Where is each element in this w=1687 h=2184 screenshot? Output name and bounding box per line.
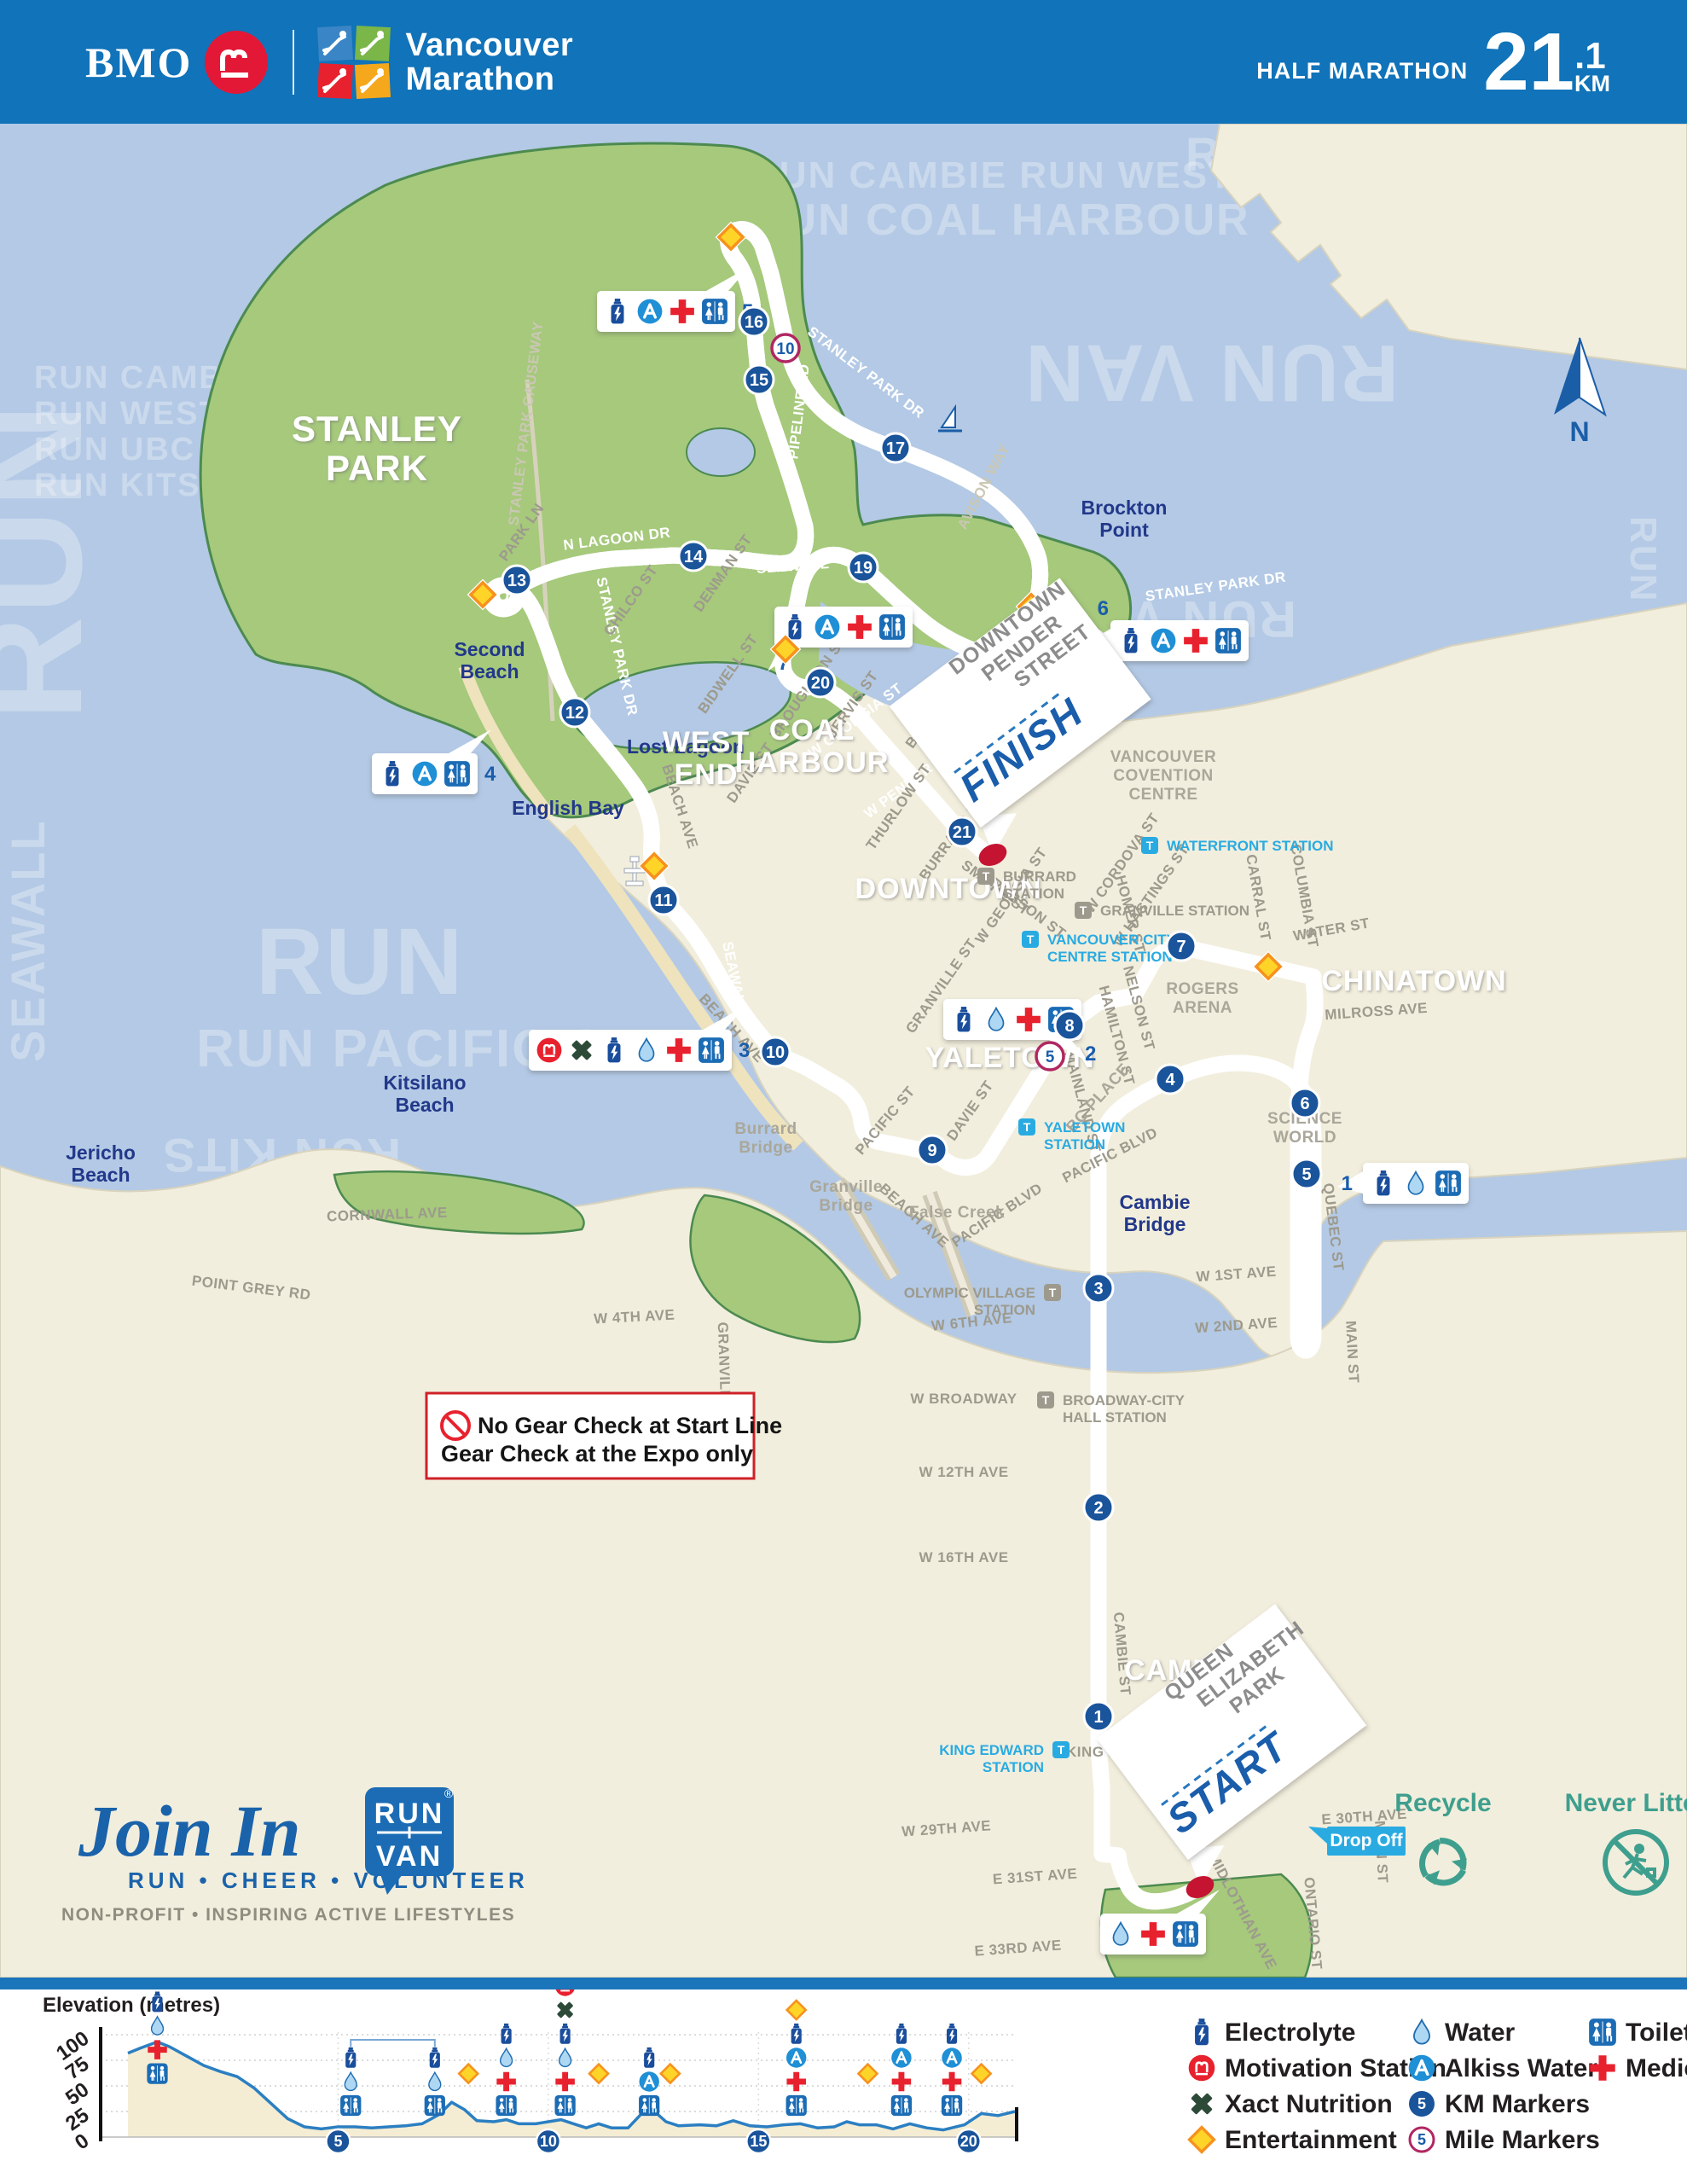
water-icon xyxy=(152,2017,164,2035)
course-map: RUNRUN CAMBIERUN WEST 49RUN UBCRUN KITSR… xyxy=(0,124,1687,1978)
legend-label: Toilets xyxy=(1626,2018,1687,2047)
km-legend-number: 5 xyxy=(1417,2095,1426,2112)
legend-label: Mile Markers xyxy=(1445,2126,1600,2154)
legend-item-km: 5KM Markers xyxy=(1409,2090,1590,2118)
km-marker-number: 10 xyxy=(766,1043,785,1062)
transit-station-label: GRANVILLE STATION xyxy=(1100,903,1249,919)
medical-icon xyxy=(892,2072,912,2092)
km-marker: 2 xyxy=(1084,1493,1113,1522)
place-label: JerichoBeach xyxy=(66,1141,136,1186)
race-label: HALF MARATHON xyxy=(1256,58,1468,84)
mile-marker-number: 10 xyxy=(776,340,794,358)
km-marker: 6 xyxy=(1290,1089,1319,1118)
gear-note-line1: No Gear Check at Start Line xyxy=(478,1413,782,1438)
place-label: SecondBeach xyxy=(454,638,525,682)
km-marker-number: 1 xyxy=(1093,1708,1103,1727)
medical-icon xyxy=(496,2072,516,2092)
chart-km-number: 5 xyxy=(333,2133,342,2150)
km-marker: 17 xyxy=(881,433,910,462)
toilets-icon xyxy=(891,2095,912,2116)
y-tick-label: 100 xyxy=(52,2027,93,2065)
km-marker: 1 xyxy=(1084,1702,1113,1731)
alkiss-icon xyxy=(638,299,663,324)
y-axis-line xyxy=(99,2027,102,2141)
toilets-icon xyxy=(1589,2018,1616,2046)
transit-t-letter: T xyxy=(1027,932,1035,946)
transit-t-letter: T xyxy=(983,869,990,883)
recycle-label: Recycle xyxy=(1394,1789,1491,1817)
chart-title: Elevation (metres) xyxy=(43,1994,220,2017)
watermark-text: RUN KITS xyxy=(34,468,200,503)
legend-item-entertainment: Entertainment xyxy=(1187,2125,1397,2154)
electrolyte-icon xyxy=(896,2024,907,2044)
watermark-text: RUN xyxy=(256,909,464,1014)
bmo-bar xyxy=(221,73,248,78)
km-marker-number: 12 xyxy=(565,704,584,723)
watermark-text: RUN VAN xyxy=(1023,328,1399,418)
toilets-icon xyxy=(879,614,905,640)
chart-station-stack xyxy=(639,2047,659,2116)
km-marker: 15 xyxy=(745,365,774,394)
elevation-chart: Elevation (metres)02550751005101520Elect… xyxy=(0,1989,1687,2184)
entertainment-icon xyxy=(786,1999,808,2021)
xact-icon xyxy=(1186,2088,1218,2120)
street-label: W BROADWAY xyxy=(910,1391,1017,1407)
landmark-label: False Creek xyxy=(909,1204,1005,1222)
km-marker: 9 xyxy=(918,1136,947,1165)
chart-km-marker: 15 xyxy=(746,2129,770,2153)
water-icon xyxy=(501,2048,513,2066)
chart-station-stack xyxy=(659,2063,681,2085)
km-marker-number: 2 xyxy=(1093,1499,1103,1518)
toilets-icon xyxy=(496,2095,516,2116)
legend-item-toilets: Toilets xyxy=(1589,2018,1687,2047)
legend-label: Electrolyte xyxy=(1225,2018,1355,2047)
toilets-icon xyxy=(554,2095,575,2116)
poster-page: BMO xyxy=(0,0,1687,2184)
legend-item-water: Water xyxy=(1414,2018,1516,2047)
transit-station: TGRANVILLE STATION xyxy=(1075,902,1249,919)
km-marker-number: 3 xyxy=(1093,1280,1103,1298)
transit-t-letter: T xyxy=(1058,1743,1065,1757)
callout-number: 1 xyxy=(1342,1172,1353,1195)
bmo-circle xyxy=(205,31,268,94)
km-marker-number: 7 xyxy=(1176,938,1186,956)
legend-label: Xact Nutrition xyxy=(1225,2090,1393,2118)
runvan-top-label: RUN xyxy=(374,1798,445,1830)
callout-number: 6 xyxy=(1098,597,1109,620)
join-in-tagline: NON-PROFIT • INSPIRING ACTIVE LIFESTYLES xyxy=(61,1905,515,1925)
km-marker: 7 xyxy=(1167,932,1196,961)
chart-station-stack xyxy=(942,2024,962,2116)
km-marker-number: 4 xyxy=(1165,1071,1175,1089)
electrolyte-icon xyxy=(501,2024,512,2044)
chart-station-stack xyxy=(588,2063,610,2085)
km-marker: 3 xyxy=(1084,1274,1113,1303)
event-title-line1: Vancouver xyxy=(405,28,573,62)
alkiss-icon xyxy=(891,2047,911,2067)
runner-head xyxy=(1634,1844,1644,1854)
km-marker: 11 xyxy=(649,886,678,915)
chart-station-stack xyxy=(457,2063,479,2085)
toilets-icon xyxy=(786,2095,807,2116)
km-marker-number: 8 xyxy=(1064,1017,1074,1036)
alkiss-icon xyxy=(413,762,438,787)
chart-station-stack xyxy=(496,2024,516,2116)
callout-number: 2 xyxy=(1085,1043,1096,1066)
motivation-icon xyxy=(537,1038,562,1063)
legend-item-medical: Medical xyxy=(1590,2054,1687,2082)
transit-station-label: WATERFRONT STATION xyxy=(1167,838,1333,854)
km-marker-number: 15 xyxy=(750,371,768,390)
legend-item-mile: 5Mile Markers xyxy=(1410,2126,1600,2154)
km-marker: 5 xyxy=(1292,1159,1321,1188)
header-bar: BMO xyxy=(0,0,1687,124)
medical-icon xyxy=(555,2072,575,2092)
alkiss-icon xyxy=(786,2047,806,2067)
divider-bar xyxy=(0,1978,1687,1989)
legend-item-motivation: Motivation Station xyxy=(1189,2054,1446,2082)
electrolyte-icon xyxy=(644,2047,654,2068)
medical-icon xyxy=(786,2072,806,2092)
electrolyte-icon xyxy=(791,2024,802,2044)
xact-icon xyxy=(553,1997,577,2022)
place-label: English Bay xyxy=(512,797,624,819)
km-marker-number: 13 xyxy=(507,572,526,590)
km-marker: 12 xyxy=(560,698,589,727)
electrolyte-icon xyxy=(430,2047,440,2068)
landmark-label: GranvilleBridge xyxy=(809,1178,883,1215)
chart-station-stack xyxy=(340,2047,361,2116)
km-marker: 16 xyxy=(739,307,768,336)
legend-label: Entertainment xyxy=(1225,2126,1397,2154)
chart-station-stack xyxy=(971,2063,993,2085)
motivation-icon xyxy=(1189,2055,1215,2082)
mile-legend-number: 5 xyxy=(1417,2131,1426,2148)
toilets-icon xyxy=(639,2095,659,2116)
street-label: MAIN ST xyxy=(1342,1321,1362,1384)
chart-station-stack xyxy=(891,2024,912,2116)
watermark-text: RUN UBC xyxy=(34,432,195,468)
km-marker-number: 20 xyxy=(811,674,830,693)
runvan-bottom-label: VAN xyxy=(376,1840,443,1873)
alkiss-icon xyxy=(639,2071,658,2091)
km-marker-number: 17 xyxy=(886,439,905,458)
entertainment-icon xyxy=(857,2063,879,2085)
event-title: Vancouver Marathon xyxy=(405,28,573,96)
km-marker: 8 xyxy=(1055,1011,1084,1040)
y-tick-label: 25 xyxy=(61,2104,93,2135)
toilets-icon xyxy=(1215,628,1241,653)
place-label: KitsilanoBeach xyxy=(383,1072,466,1116)
header-divider xyxy=(293,30,294,95)
km-marker: 13 xyxy=(502,566,531,595)
toilets-icon xyxy=(425,2095,445,2116)
entertainment-icon xyxy=(457,2063,479,2085)
brand-block: BMO xyxy=(85,25,573,100)
transit-t-letter: T xyxy=(1080,903,1087,917)
electrolyte-icon xyxy=(947,2024,957,2044)
mile-marker: 10 xyxy=(772,334,799,362)
km-marker-number: 19 xyxy=(854,559,872,578)
toilets-icon xyxy=(699,1037,724,1063)
electrolyte-icon xyxy=(1195,2018,1209,2045)
chart-station-stack xyxy=(425,2047,445,2116)
water-icon xyxy=(429,2072,441,2090)
electrolyte-icon xyxy=(345,2047,356,2068)
street-label: W 16TH AVE xyxy=(919,1549,1008,1565)
landmark-label: ROGERSARENA xyxy=(1166,980,1238,1017)
distance-int: 21 xyxy=(1483,28,1574,96)
gear-note-line2: Gear Check at the Expo only xyxy=(441,1441,753,1467)
legend-label: Medical xyxy=(1626,2054,1687,2082)
legend-label: KM Markers xyxy=(1445,2090,1590,2118)
legend-item-xact: Xact Nutrition xyxy=(1186,2088,1393,2120)
transit-t-letter: T xyxy=(1146,839,1154,852)
event-title-line2: Marathon xyxy=(405,62,573,96)
chart-station-stack xyxy=(786,1999,808,2116)
entertainment-icon xyxy=(659,2063,681,2085)
join-in-title: Join In xyxy=(78,1790,301,1872)
km-marker: 20 xyxy=(806,668,835,697)
mile-marker-number: 5 xyxy=(1046,1048,1055,1066)
motivation-icon xyxy=(555,1989,575,1996)
beaver-lake-water xyxy=(687,428,755,476)
north-label: N xyxy=(1569,416,1589,447)
km-marker-number: 5 xyxy=(1301,1165,1311,1184)
alkiss-icon xyxy=(815,615,840,640)
transit-t-letter: T xyxy=(1023,1120,1031,1134)
legend-item-electrolyte: Electrolyte xyxy=(1195,2018,1355,2047)
chart-end-cap xyxy=(1015,2107,1018,2141)
drop-off-label: Drop Off xyxy=(1330,1831,1403,1850)
chart-km-marker: 5 xyxy=(326,2129,350,2153)
landmark-label: BurrardBridge xyxy=(734,1120,797,1157)
km-marker-number: 21 xyxy=(953,823,971,842)
transit-t-letter: T xyxy=(1049,1286,1057,1299)
chart-km-number: 20 xyxy=(960,2133,977,2150)
km-marker: 4 xyxy=(1156,1065,1185,1094)
entertainment-icon xyxy=(1187,2125,1216,2154)
chart-km-number: 15 xyxy=(750,2133,767,2150)
toilets-icon xyxy=(444,761,470,787)
alkiss-icon xyxy=(1151,629,1176,653)
toilets-icon xyxy=(1173,1921,1198,1947)
neverlitter-label: Never Litter xyxy=(1565,1789,1687,1817)
km-marker: 10 xyxy=(761,1037,790,1066)
gear-check-note: No Gear Check at Start LineGear Check at… xyxy=(426,1393,782,1478)
chart-station-stack xyxy=(553,1989,577,2116)
bracket-path xyxy=(351,2040,435,2047)
vancouver-marathon-logo-icon xyxy=(316,25,391,100)
watermark-text: SEAWALL xyxy=(1,819,55,1062)
watermark-text: RUN COAL HARBOUR xyxy=(751,195,1250,245)
toilets-icon xyxy=(1435,1170,1461,1196)
km-marker-number: 14 xyxy=(684,548,704,566)
toilets-icon xyxy=(702,299,728,324)
legend-label: Alkiss Water xyxy=(1445,2054,1597,2082)
street-label: W 12TH AVE xyxy=(919,1464,1008,1480)
toilets-icon xyxy=(942,2095,962,2116)
water-icon xyxy=(345,2072,357,2090)
y-tick-label: 50 xyxy=(61,2078,93,2110)
neighborhood-label: CHINATOWN xyxy=(1321,965,1506,997)
bmo-roundel-icon xyxy=(202,28,270,96)
distance-unit: KM xyxy=(1574,73,1610,95)
toilets-icon xyxy=(147,2063,167,2083)
km-marker-number: 16 xyxy=(745,313,763,332)
entertainment-icon xyxy=(588,2063,610,2085)
vm-squares xyxy=(317,25,391,98)
km-marker: 14 xyxy=(679,542,708,571)
transit-station-label: VANCOUVER CITYCENTRE STATION xyxy=(1047,932,1176,965)
km-marker: 19 xyxy=(849,553,878,582)
medical-icon xyxy=(942,2072,962,2092)
km-marker: 21 xyxy=(948,817,977,846)
transit-t-letter: T xyxy=(1042,1393,1050,1407)
distance-decimal: .1 xyxy=(1574,40,1606,73)
runvan-reg-mark: ® xyxy=(444,1786,454,1800)
km-marker-number: 6 xyxy=(1300,1095,1309,1113)
mile-marker: 5 xyxy=(1036,1043,1064,1070)
chart-station-stack xyxy=(857,2063,879,2085)
place-label: CambieBridge xyxy=(1119,1191,1190,1235)
alkiss-icon xyxy=(1409,2055,1435,2082)
transit-station: TWATERFRONT STATION xyxy=(1141,837,1333,854)
water-icon xyxy=(559,2048,571,2066)
distance-block: HALF MARATHON 21 .1 KM xyxy=(1256,28,1610,96)
entertainment-icon xyxy=(971,2063,993,2085)
callout-number: 3 xyxy=(739,1039,750,1062)
station-bracket xyxy=(351,2040,435,2047)
bmo-wordmark: BMO xyxy=(85,38,192,87)
chart-km-marker: 10 xyxy=(536,2129,560,2153)
electrolyte-icon xyxy=(560,2024,571,2044)
join-in-subtitle: RUN • CHEER • VOLUNTEER xyxy=(128,1867,529,1893)
toilets-icon xyxy=(340,2095,361,2116)
water-icon xyxy=(1414,2020,1429,2044)
legend-label: Water xyxy=(1445,2018,1516,2047)
chart-km-marker: 20 xyxy=(957,2129,981,2153)
km-marker-number: 9 xyxy=(927,1141,936,1160)
chart-km-number: 10 xyxy=(540,2133,557,2150)
alkiss-icon xyxy=(942,2047,961,2067)
km-marker-number: 11 xyxy=(654,892,672,910)
callout-number: 4 xyxy=(484,763,496,786)
